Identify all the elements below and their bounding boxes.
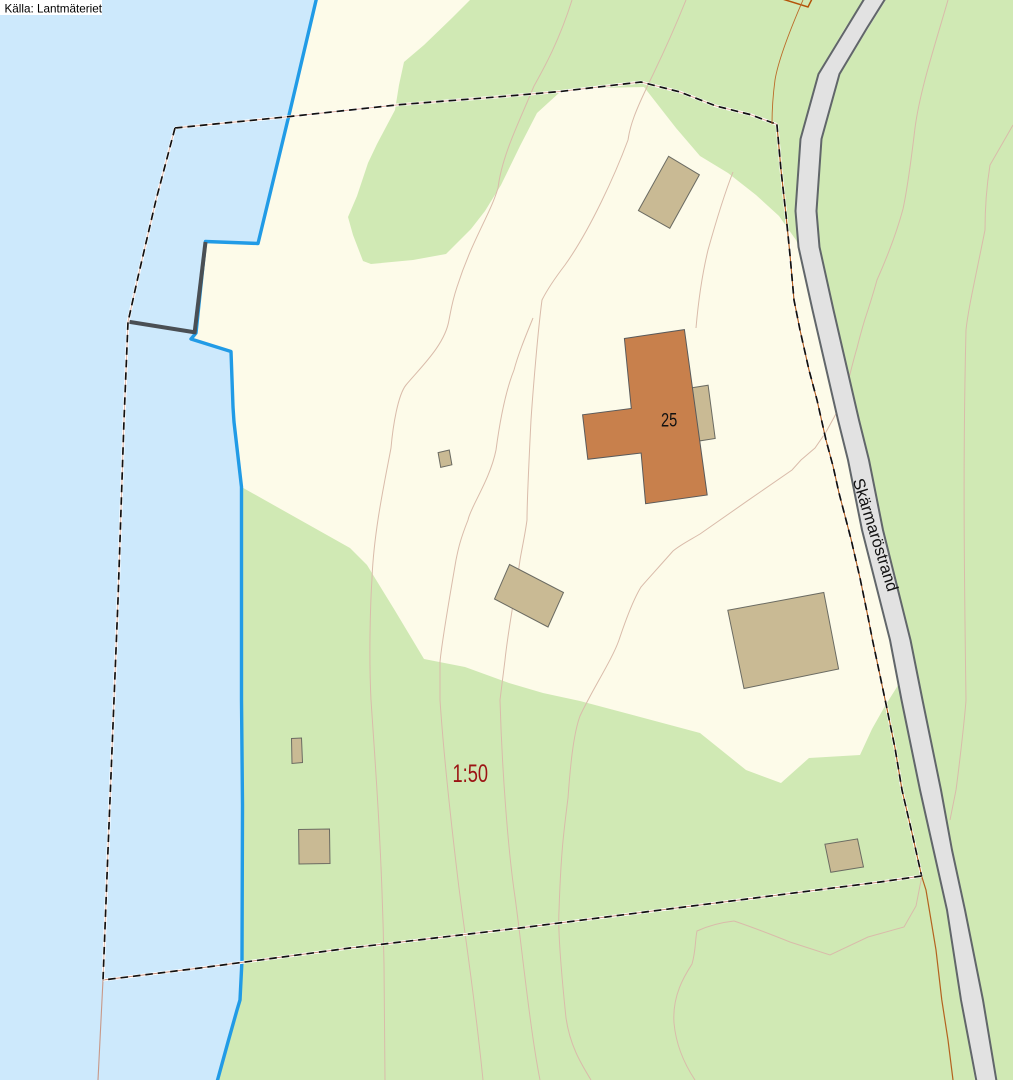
svg-text:Källa: Lantmäteriet: Källa: Lantmäteriet xyxy=(5,3,103,16)
svg-text:1:50: 1:50 xyxy=(453,759,489,788)
svg-text:25: 25 xyxy=(661,408,677,431)
